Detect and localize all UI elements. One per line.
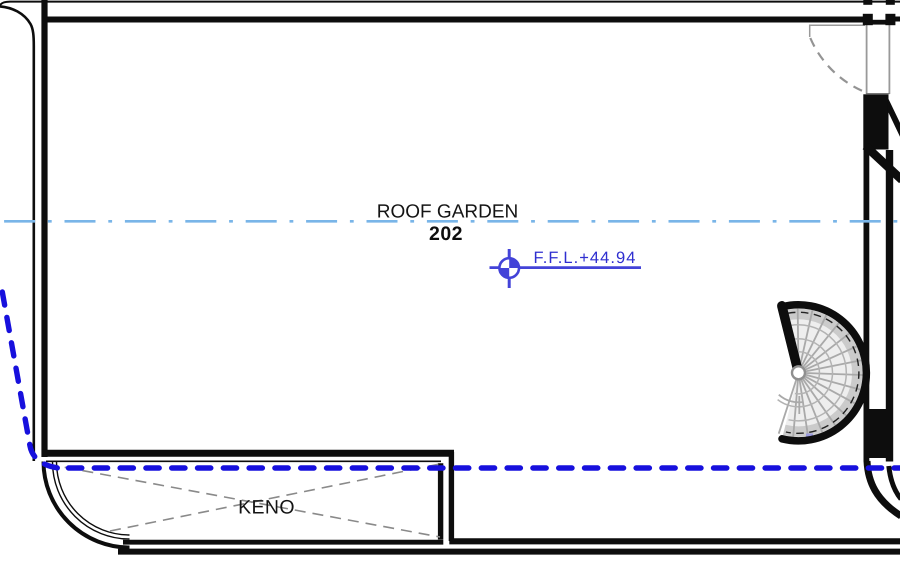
svg-text:F.F.L.+44.94: F.F.L.+44.94	[534, 249, 637, 267]
svg-text:202: 202	[429, 223, 463, 245]
svg-text:KENO: KENO	[238, 496, 295, 518]
svg-text:ROOF GARDEN: ROOF GARDEN	[377, 202, 518, 223]
